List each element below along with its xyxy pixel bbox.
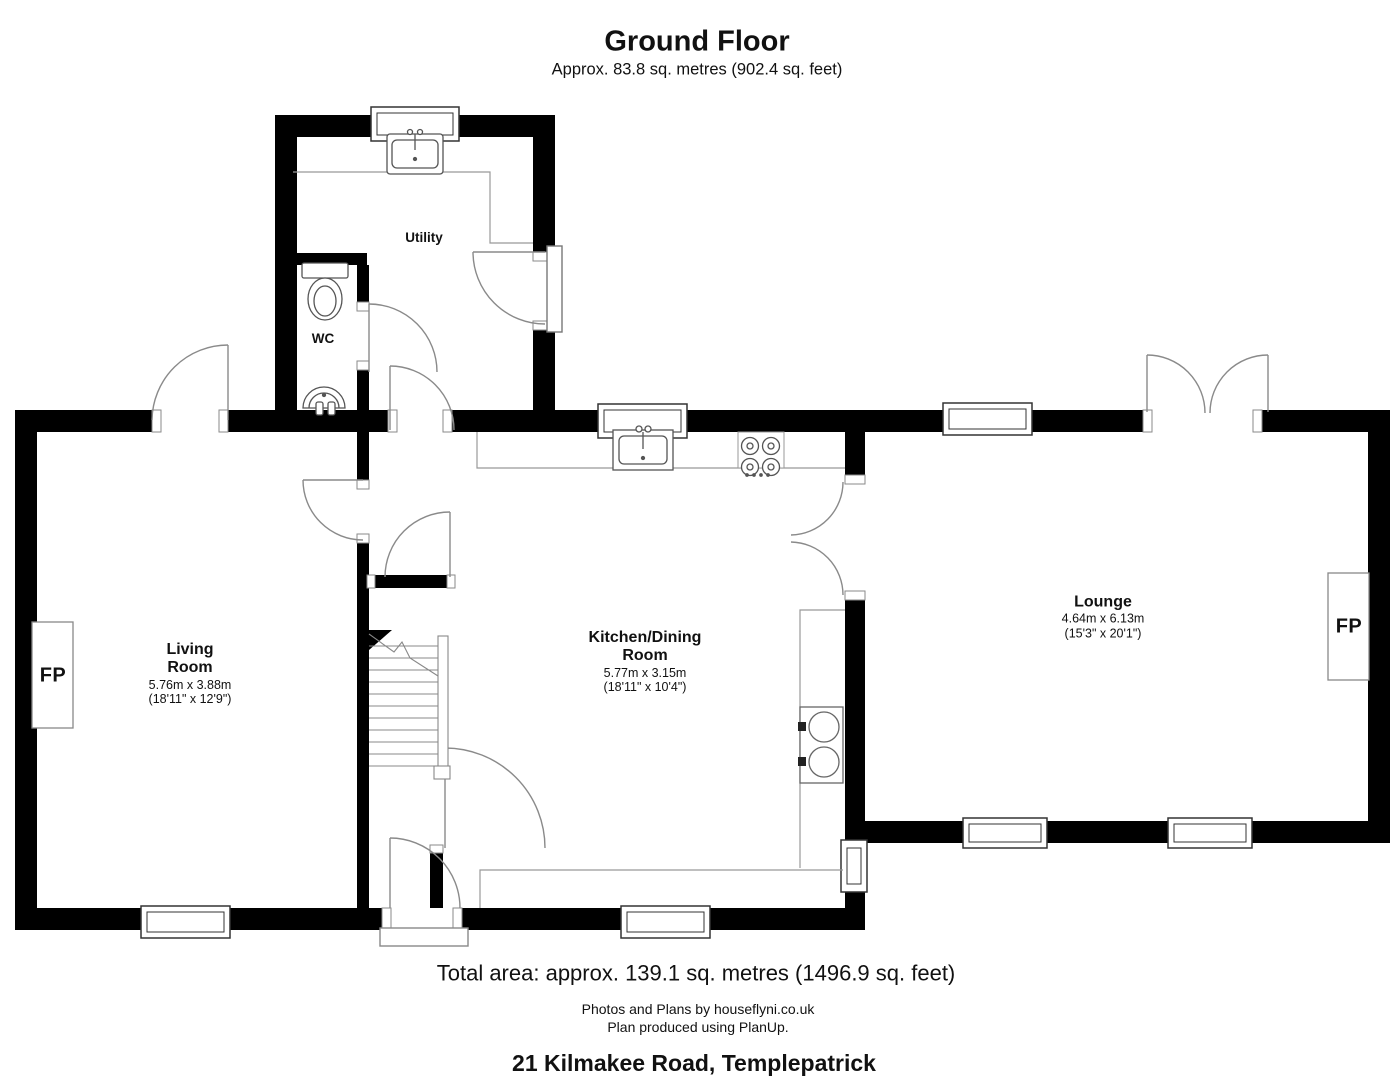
lounge-bottom-window-2	[1168, 818, 1252, 848]
fireplace-label-right: FP	[1336, 616, 1363, 639]
kitchen-lounge-double-door	[791, 482, 843, 595]
side-counter-basins	[798, 707, 843, 783]
room-label-lounge: Lounge 4.64m x 6.13m (15'3" x 20'1")	[1062, 593, 1145, 640]
utility-sink	[387, 130, 443, 175]
page-title: Ground Floor	[604, 25, 789, 58]
hob	[738, 432, 784, 476]
utility-exterior-door	[473, 246, 562, 332]
kitchen-dims-imperial: (18'11" x 10'4")	[589, 680, 702, 694]
floor-plan-drawing	[0, 0, 1400, 1080]
credit-line-1: Photos and Plans by houseflyni.co.uk	[582, 1001, 815, 1017]
lounge-name: Lounge	[1062, 593, 1145, 611]
room-label-wc: WC	[312, 331, 335, 347]
credit-line-2: Plan produced using PlanUp.	[607, 1019, 788, 1035]
kitchen-east-window	[841, 840, 867, 892]
walls	[15, 115, 1390, 930]
page-subtitle: Approx. 83.8 sq. metres (902.4 sq. feet)	[552, 61, 843, 80]
wc-door	[369, 304, 437, 372]
lounge-dims-metric: 4.64m x 6.13m	[1062, 612, 1145, 626]
kitchen-bottom-window	[621, 906, 710, 938]
windows	[141, 107, 1252, 938]
toilet	[302, 263, 348, 320]
stairs	[369, 634, 450, 779]
living-name-line2: Room	[149, 660, 232, 678]
kitchen-name-line2: Room	[589, 648, 702, 666]
lounge-french-doors	[1147, 355, 1268, 413]
entrance-door	[380, 838, 468, 946]
total-area-text: Total area: approx. 139.1 sq. metres (14…	[437, 960, 956, 985]
kitchen-sink	[613, 426, 673, 470]
living-bottom-window	[141, 906, 230, 938]
kitchen-dims-metric: 5.77m x 3.15m	[589, 666, 702, 680]
living-exterior-door	[152, 345, 228, 420]
floor-plan-page: Ground Floor Approx. 83.8 sq. metres (90…	[0, 0, 1400, 1080]
kitchen-name-line1: Kitchen/Dining	[589, 629, 702, 647]
lobby-upper-door	[385, 512, 450, 577]
lobby-lower-door	[445, 748, 545, 848]
property-address: 21 Kilmakee Road, Templepatrick	[512, 1050, 876, 1076]
lounge-bottom-window-1	[963, 818, 1047, 848]
living-name-line1: Living	[149, 641, 232, 659]
room-label-kitchen: Kitchen/Dining Room 5.77m x 3.15m (18'11…	[589, 629, 702, 695]
room-label-utility: Utility	[405, 230, 443, 246]
room-label-living: Living Room 5.76m x 3.88m (18'11" x 12'9…	[149, 641, 232, 707]
counters	[293, 172, 845, 908]
living-dims-metric: 5.76m x 3.88m	[149, 678, 232, 692]
lounge-dims-imperial: (15'3" x 20'1")	[1062, 626, 1145, 640]
lounge-top-window	[943, 403, 1032, 435]
living-dims-imperial: (18'11" x 12'9")	[149, 692, 232, 706]
kitchen-bottom-counter	[480, 870, 843, 908]
fireplace-label-left: FP	[40, 665, 67, 688]
living-room-door	[303, 480, 363, 540]
